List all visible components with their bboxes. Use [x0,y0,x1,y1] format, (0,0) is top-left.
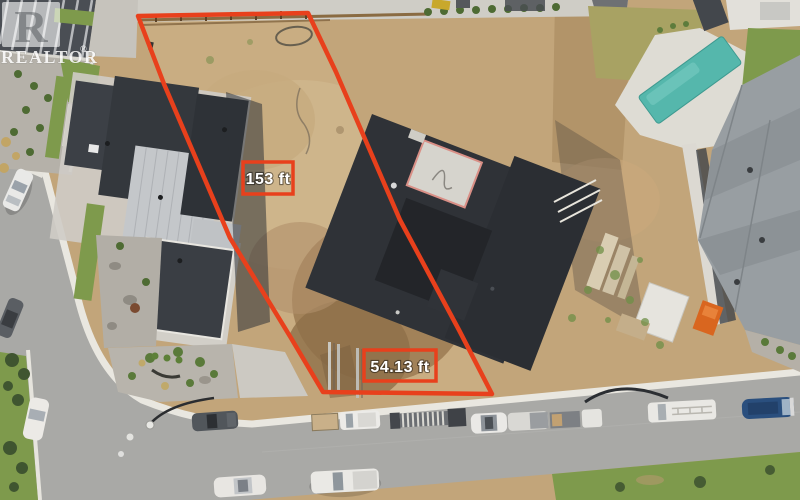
front-label-text: 54.13 ft [370,359,429,376]
skylight [88,144,99,153]
paint-dot [118,451,124,457]
corner-garden [108,344,238,402]
roof-panel [760,2,790,20]
parked-car-gray [191,410,238,431]
blue-van [742,397,795,420]
side-label-text: 153 ft [246,171,291,188]
boulder [199,376,211,384]
realtor-logo-letter: R [14,1,48,52]
street-lamp-head [146,421,154,429]
moving-car-white [213,474,266,498]
aerial-lot-photo: 153 ft 54.13 ft R REALTOR ® [0,0,800,500]
parked-truck-graybed [508,411,549,431]
equipment [456,0,470,8]
paint-dot [127,434,134,441]
parked-suv-silver [471,412,508,434]
machinery [505,0,545,11]
gravel-garden-lower [96,235,162,348]
registered-symbol: ® [80,44,87,54]
service-truck-ladder [648,399,717,423]
